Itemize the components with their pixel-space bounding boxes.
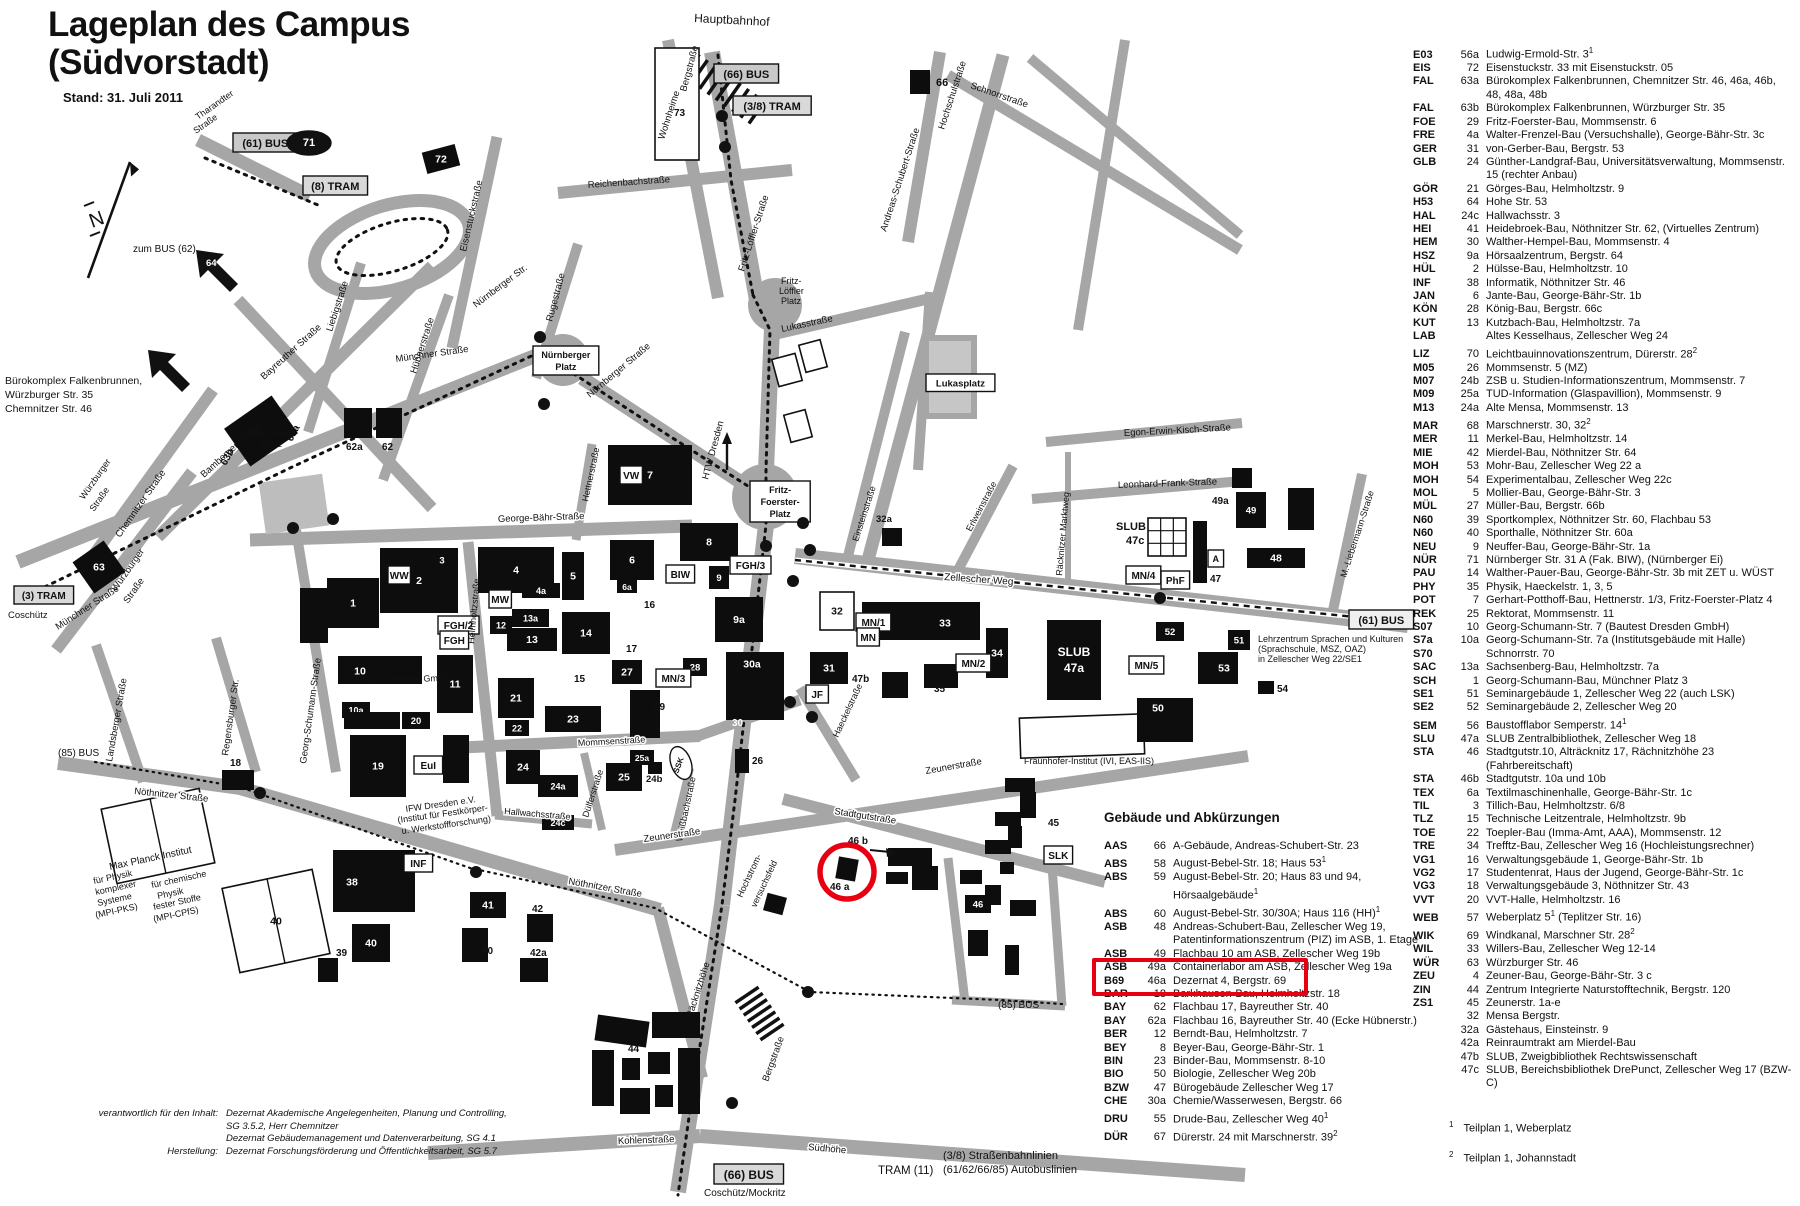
legend-desc: von-Gerber-Bau, Bergstr. 53 [1486, 143, 1793, 156]
legend-number: 55 [1140, 1113, 1173, 1126]
building [886, 872, 908, 884]
building-number: SLUB [1058, 645, 1091, 659]
legend-row: BAY62aFlachbau 16, Bayreuther Str. 40 (E… [1104, 1015, 1424, 1028]
legend-number: 47a [1453, 733, 1486, 746]
building-number: 5 [570, 571, 576, 583]
legend-abbr: SCH [1413, 675, 1453, 688]
legend-row: 32aGästehaus, Einsteinstr. 9 [1413, 1024, 1793, 1037]
legend-row: NÜR71Nürnberger Str. 31 A (Fak. BIW), (N… [1413, 554, 1793, 567]
htw-arrow-head [722, 432, 732, 444]
legend-number: 40 [1453, 527, 1486, 540]
legend-number: 24a [1453, 402, 1486, 415]
legend-number: 31 [1453, 143, 1486, 156]
legend-row: SLU47aSLUB Zentralbibliothek, Zellescher… [1413, 733, 1793, 746]
street-or-number-label: 47 [1210, 574, 1222, 585]
sign-label: VW [623, 471, 640, 482]
street-or-number-label: 18 [230, 758, 242, 769]
street-or-number-label: 66 [936, 77, 948, 89]
legend-row: WÜR63Würzburger Str. 46 [1413, 957, 1793, 970]
building [443, 735, 469, 783]
building-number: 7 [647, 470, 653, 482]
legend-abbr: MIE [1413, 447, 1453, 460]
legend-desc: Mollier-Bau, George-Bähr-Str. 3 [1486, 487, 1793, 500]
legend-row: MER11Merkel-Bau, Helmholtzstr. 14 [1413, 433, 1793, 446]
building-number: 46 [973, 900, 984, 911]
building-number: 51 [1234, 636, 1245, 647]
legend-row: GÖR21Görges-Bau, Helmholtzstr. 9 [1413, 183, 1793, 196]
legend-desc: Willers-Bau, Zellescher Weg 12-14 [1486, 943, 1793, 956]
legend-row: HSZ9aHörsaalzentrum, Bergstr. 64 [1413, 250, 1793, 263]
legend-number: 58 [1140, 858, 1173, 871]
stop-dot [534, 331, 546, 343]
legend-row: DÜR67Dürerstr. 24 mit Marschnerstr. 392 [1104, 1127, 1424, 1145]
legend-number: 42a [1453, 1037, 1486, 1050]
sign-label: (61) BUS [242, 138, 288, 150]
sign-label: EuI [421, 761, 437, 772]
legend-right: E0356aLudwig-Ermold-Str. 31EIS72Eisenstu… [1413, 44, 1793, 1091]
legend-row: VG116Verwaltungsgebäude 1, George-Bähr-S… [1413, 854, 1793, 867]
legend-abbr: HSZ [1413, 250, 1453, 263]
legend-number: 20 [1453, 894, 1486, 907]
building [968, 930, 988, 956]
building-number: 3 [439, 556, 444, 567]
street-or-number-label: 62a [346, 442, 363, 453]
legend-abbr: TOE [1413, 827, 1453, 840]
legend-desc: Beyer-Bau, George-Bähr-Str. 1 [1173, 1042, 1423, 1055]
street-or-number-label: Nürnberger Str. [471, 263, 529, 311]
stop-dot [287, 522, 299, 534]
legend-abbr: S7a [1413, 634, 1453, 647]
campus-map-page: 4032721231010a1119202122232424a2525a30a2… [0, 0, 1800, 1206]
legend-desc: Reinraumtrakt am Mierdel-Bau [1486, 1037, 1793, 1050]
legend-number: 69 [1453, 930, 1486, 943]
building-number: 30a [743, 659, 761, 671]
legend-desc: Sachsenberg-Bau, Helmholtzstr. 7a [1486, 661, 1793, 674]
legend-row: TOE22Toepler-Bau (Imma-Amt, AAA), Mommse… [1413, 827, 1793, 840]
legend-abbr: PAU [1413, 567, 1453, 580]
building [648, 1052, 670, 1074]
legend-number: 15 [1453, 813, 1486, 826]
legend-desc: Walther-Pauer-Bau, George-Bähr-Str. 3b m… [1486, 567, 1793, 580]
street-or-number-label: Chemnitzer Str. 46 [5, 403, 92, 415]
legend-desc: Rektorat, Mommsenstr. 11 [1486, 608, 1793, 621]
legend-desc: Zentrum Integrierte Naturstofftechnik, B… [1486, 984, 1793, 997]
legend-number: 33 [1453, 943, 1486, 956]
legend-desc: Bürokomplex Falkenbrunnen, Würzburger St… [1486, 102, 1793, 115]
building-number: 31 [823, 663, 835, 675]
stop-dot [797, 517, 809, 529]
building-number: 40 [270, 916, 282, 928]
stop-dot [726, 1097, 738, 1109]
street-or-number-label: 45 [1048, 818, 1060, 829]
legend-number: 46 [1453, 746, 1486, 759]
legend-desc: SLUB Zentralbibliothek, Zellescher Weg 1… [1486, 733, 1793, 746]
building [763, 893, 787, 916]
credit-row: SG 3.5.2, Herr Chemnitzer [88, 1121, 507, 1134]
building-number: 40 [365, 938, 377, 950]
legend-number: 72 [1453, 62, 1486, 75]
legend-number: 60 [1140, 908, 1173, 921]
building-number: 24a [550, 782, 566, 792]
highlight-rectangle [1092, 958, 1308, 996]
legend-number: 30a [1140, 1095, 1173, 1108]
legend-desc: Heidebroek-Bau, Nöthnitzer Str. 62, (Vir… [1486, 223, 1793, 236]
legend-number: 62 [1140, 1001, 1173, 1014]
building [300, 588, 328, 643]
legend-number: 66 [1140, 840, 1173, 853]
street-or-number-label: Platz [262, 439, 283, 449]
legend-number: 21 [1453, 183, 1486, 196]
legend-abbr: N60 [1413, 527, 1453, 540]
sign-label: INF [410, 859, 426, 870]
oval-label: 71 [303, 137, 315, 149]
legend-desc: Günther-Landgraf-Bau, Universitätsverwal… [1486, 156, 1793, 183]
legend-number: 38 [1453, 277, 1486, 290]
street-or-number-label: 30 [732, 718, 744, 729]
legend-row: ABS58August-Bebel-Str. 18; Haus 531 [1104, 853, 1424, 871]
legend-abbr: LIZ [1413, 348, 1453, 361]
legend-desc: Hülsse-Bau, Helmholtzstr. 10 [1486, 263, 1793, 276]
outline-building [1019, 714, 1144, 758]
street-or-number-label: 17 [626, 644, 638, 655]
legend-desc: Walter-Frenzel-Bau (Versuchshalle), Geor… [1486, 129, 1793, 142]
legend-row: EIS72Eisenstuckstr. 33 mit Eisenstuckstr… [1413, 62, 1793, 75]
legend-abbr: HAL [1413, 210, 1453, 223]
building [1232, 468, 1252, 488]
legend-desc: Sportkomplex, Nöthnitzer Str. 60, Flachb… [1486, 514, 1793, 527]
legend-row: GLB24Günther-Landgraf-Bau, Universitätsv… [1413, 156, 1793, 183]
legend-abbr: TLZ [1413, 813, 1453, 826]
building-number: 23 [567, 714, 579, 726]
legend-abbr: EIS [1413, 62, 1453, 75]
legend-number: 64 [1453, 196, 1486, 209]
credits: verantwortlich für den Inhalt:Dezernat A… [88, 1108, 507, 1158]
direction-arrow [196, 250, 238, 292]
legend-number: 29 [1453, 116, 1486, 129]
legend-row: PHY35Physik, Haeckelstr. 1, 3, 5 [1413, 581, 1793, 594]
legend-number: 1 [1453, 675, 1486, 688]
legend-number: 63a [1453, 75, 1486, 88]
legend-abbr: FAL [1413, 102, 1453, 115]
building-number: 27 [621, 667, 633, 679]
legend-abbr: KUT [1413, 317, 1453, 330]
legend-row: HÜL2Hülsse-Bau, Helmholtzstr. 10 [1413, 263, 1793, 276]
legend-number: 13a [1453, 661, 1486, 674]
building-number: 38 [346, 877, 358, 889]
legend-row: WEB57Weberplatz 51 (Teplitzer Str. 16) [1413, 907, 1793, 925]
legend-row: E0356aLudwig-Ermold-Str. 31 [1413, 44, 1793, 62]
legend-abbr: AAS [1104, 840, 1140, 853]
outline-building [799, 340, 827, 373]
building [318, 958, 338, 982]
legend-number: 6a [1453, 787, 1486, 800]
legend-number: 24b [1453, 375, 1486, 388]
legend-abbr: ABS [1104, 871, 1140, 884]
legend-row: ZEU4Zeuner-Bau, George-Bähr-Str. 3 c [1413, 970, 1793, 983]
legend-desc: Sporthalle, Nöthnitzer Str. 60a [1486, 527, 1793, 540]
legend-desc: Zeunerstr. 1a-e [1486, 997, 1793, 1010]
legend-desc: Stadtgutstr. 10a und 10b [1486, 773, 1793, 786]
stop-dot [784, 696, 796, 708]
legend-row: BIO50Biologie, Zellescher Weg 20b [1104, 1068, 1424, 1081]
legend-number: 68 [1453, 420, 1486, 433]
legend-desc: Nürnberger Str. 31 A (Fak. BIW), (Nürnbe… [1486, 554, 1793, 567]
legend-abbr: JAN [1413, 290, 1453, 303]
legend-row: VG318Verwaltungsgebäude 3, Nöthnitzer St… [1413, 880, 1793, 893]
legend-desc: Georg-Schumann-Str. 7a (Institutsgebäude… [1486, 634, 1793, 647]
legend-desc: Bürogebäude Zellescher Weg 17 [1173, 1082, 1423, 1095]
building [344, 712, 400, 729]
legend-row: BZW47Bürogebäude Zellescher Weg 17 [1104, 1082, 1424, 1095]
legend-row: BEY8Beyer-Bau, George-Bähr-Str. 1 [1104, 1042, 1424, 1055]
building [520, 958, 548, 982]
sign-label: BIW [671, 570, 691, 581]
legend-row: SAC13aSachsenberg-Bau, Helmholtzstr. 7a [1413, 661, 1793, 674]
legend-number: 54 [1453, 474, 1486, 487]
legend-number: 9 [1453, 541, 1486, 554]
legend-number: 7 [1453, 594, 1486, 607]
legend-abbr: HEI [1413, 223, 1453, 236]
road-ring [303, 183, 481, 310]
legend-number: 51 [1453, 688, 1486, 701]
sign-label: (3/8) TRAM [743, 101, 800, 113]
footnote: 2Teilplan 1, Johannstadt [1449, 1142, 1576, 1172]
legend-abbr: TIL [1413, 800, 1453, 813]
legend-abbr: ASB [1104, 921, 1140, 934]
sign-label: (8) TRAM [311, 181, 359, 193]
legend-row: SCH1Georg-Schumann-Bau, Münchner Platz 3 [1413, 675, 1793, 688]
legend-abbr: BAY [1104, 1001, 1140, 1014]
legend-abbr: REK [1413, 608, 1453, 621]
street-or-number-label: (85) BUS [998, 1000, 1039, 1011]
footnotes: 1Teilplan 1, Weberplatz2Teilplan 1, Joha… [1449, 1112, 1576, 1171]
building [1288, 488, 1314, 530]
building-number: 47a [1064, 661, 1084, 675]
legend-number: 53 [1453, 460, 1486, 473]
street-or-number-label: zum BUS (62) [133, 244, 196, 255]
legend-number: 16 [1453, 854, 1486, 867]
building [1047, 620, 1101, 700]
legend-abbr: BIO [1104, 1068, 1140, 1081]
legend-desc: Fritz-Foerster-Bau, Mommsenstr. 6 [1486, 116, 1793, 129]
legend-row: BIN23Binder-Bau, Mommsenstr. 8-10 [1104, 1055, 1424, 1068]
legend-bottom-heading: Gebäude und Abkürzungen [1104, 810, 1280, 825]
building [1010, 900, 1036, 916]
legend-number: 39 [1453, 514, 1486, 527]
building-number: 25a [635, 753, 649, 763]
building-number: 49 [1246, 506, 1257, 517]
building [1005, 778, 1035, 792]
legend-row: MAR68Marschnerstr. 30, 322 [1413, 415, 1793, 433]
legend-row: WIK69Windkanal, Marschner Str. 282 [1413, 925, 1793, 943]
legend-row: NEU9Neuffer-Bau, George-Bähr-Str. 1a [1413, 541, 1793, 554]
legend-number: 18 [1453, 880, 1486, 893]
legend-row: 47bSLUB, Zweigbibliothek Rechtswissensch… [1413, 1051, 1793, 1064]
legend-abbr: SE1 [1413, 688, 1453, 701]
legend-row: DRU55Drude-Bau, Zellescher Weg 401 [1104, 1109, 1424, 1127]
legend-number: 42 [1453, 447, 1486, 460]
legend-number: 5 [1453, 487, 1486, 500]
road [58, 763, 240, 788]
legend-abbr: GER [1413, 143, 1453, 156]
legend-desc: Weberplatz 51 (Teplitzer Str. 16) [1486, 907, 1793, 925]
building-number: 52 [1165, 627, 1176, 638]
legend-desc: Müller-Bau, Bergstr. 66b [1486, 500, 1793, 513]
building-number: 11 [449, 679, 460, 691]
stop-dot [538, 398, 550, 410]
legend-row: S70Schnorrstr. 70 [1413, 648, 1793, 661]
legend-number: 27 [1453, 500, 1486, 513]
legend-row: WIL33Willers-Bau, Zellescher Weg 12-14 [1413, 943, 1793, 956]
legend-row: INF38Informatik, Nöthnitzer Str. 46 [1413, 277, 1793, 290]
legend-abbr: M07 [1413, 375, 1453, 388]
legend-row: JAN6Jante-Bau, George-Bähr-Str. 1b [1413, 290, 1793, 303]
street-or-number-label: 49a [1212, 496, 1229, 507]
legend-abbr: BEY [1104, 1042, 1140, 1055]
road [452, 137, 497, 348]
sign-label: Lukasplatz [936, 379, 985, 390]
legend-row: MOH54Experimentalbau, Zellescher Weg 22c [1413, 474, 1793, 487]
stop-dot [1154, 592, 1166, 604]
direction-arrow [148, 350, 190, 392]
sign-label: JF [811, 690, 823, 701]
legend-abbr: HÜL [1413, 263, 1453, 276]
road [294, 518, 336, 772]
sign-label: MN/2 [961, 659, 985, 670]
legend-row: REK25Rektorat, Mommsenstr. 11 [1413, 608, 1793, 621]
legend-row: MOH53Mohr-Bau, Zellescher Weg 22 a [1413, 460, 1793, 473]
building-number: 4a [536, 586, 547, 596]
street-or-number-label: Coschütz/Mockritz [704, 1188, 786, 1199]
legend-row: N6039Sportkomplex, Nöthnitzer Str. 60, F… [1413, 514, 1793, 527]
sign-label: MN/3 [661, 674, 685, 685]
title-line2: (Südvorstadt) [48, 44, 410, 82]
building [882, 672, 908, 698]
page-title: Lageplan des Campus (Südvorstadt) [48, 6, 410, 82]
legend-number: 2 [1453, 263, 1486, 276]
legend-row: FOE29Fritz-Foerster-Bau, Mommsenstr. 6 [1413, 116, 1793, 129]
legend-abbr: PHY [1413, 581, 1453, 594]
legend-desc: Textil­maschinenhalle, George-Bähr-Str. … [1486, 787, 1793, 800]
legend-row: POT7Gerhart-Potthoff-Bau, Hettnerstr. 1/… [1413, 594, 1793, 607]
legend-row: GER31von-Gerber-Bau, Bergstr. 53 [1413, 143, 1793, 156]
building-number: 21 [510, 693, 522, 705]
legend-abbr: SLU [1413, 733, 1453, 746]
building-number: 1 [350, 598, 356, 610]
road [957, 466, 1013, 572]
building [592, 1050, 614, 1106]
legend-desc: Hörsaalzentrum, Bergstr. 64 [1486, 250, 1793, 263]
legend-desc: Zeuner-Bau, George-Bähr-Str. 3 c [1486, 970, 1793, 983]
legend-desc: TUD-Information (Glaspavillion), Mommsen… [1486, 388, 1793, 401]
street-or-number-label: Bautest Dresden GmbH [354, 673, 450, 686]
building [835, 856, 859, 881]
street-or-number-label: Platz [781, 296, 802, 306]
legend-row: FRE4aWalter-Frenzel-Bau (Versuchshalle),… [1413, 129, 1793, 142]
street-or-number-label: 29 [654, 702, 666, 713]
footnote: 1Teilplan 1, Weberplatz [1449, 1112, 1576, 1142]
legend-row: MÜL27Müller-Bau, Bergstr. 66b [1413, 500, 1793, 513]
stop-dot [327, 513, 339, 525]
legend-row: ZS145Zeunerstr. 1a-e [1413, 997, 1793, 1010]
legend-row: VG217Studentenrat, Haus der Jugend, Geor… [1413, 867, 1793, 880]
building-number: 24 [517, 762, 529, 774]
building [620, 1088, 650, 1114]
building-number: 63 [93, 562, 105, 574]
sign-label: MN/4 [1131, 571, 1155, 582]
building [882, 528, 902, 546]
building [995, 812, 1021, 826]
legend-row: M0724bZSB u. Studien-Informationszentrum… [1413, 375, 1793, 388]
legend-desc: Informatik, Nöthnitzer Str. 46 [1486, 277, 1793, 290]
street-or-number-label: (Sprachschule, MSZ, OAZ) [1258, 644, 1366, 654]
credit-row: Herstellung:Dezernat Forschungsförderung… [88, 1146, 507, 1159]
legend-row: ZIN44Zentrum Integrierte Naturstofftechn… [1413, 984, 1793, 997]
sign-label: MN/5 [1134, 661, 1158, 672]
street-or-number-label: Würzburger Str. 35 [5, 389, 93, 401]
legend-abbr: BIN [1104, 1055, 1140, 1068]
building [1258, 681, 1274, 694]
legend-row: KUT13Kutzbach-Bau, Helmholtzstr. 7a [1413, 317, 1793, 330]
building [1193, 521, 1207, 583]
legend-desc: SLUB, Bereichsbibliothek DrePunct, Zelle… [1486, 1064, 1793, 1091]
legend-desc: Stadtgutstr.10, Alträcknitz 17, Rächnitz… [1486, 746, 1793, 773]
building [912, 866, 938, 890]
stop-dot [470, 866, 482, 878]
sign-label: FGH/3 [736, 561, 766, 572]
legend-row: TLZ15Technische Leitzentrale, Helmholtzs… [1413, 813, 1793, 826]
legend-desc: ZSB u. Studien-Informationszentrum, Momm… [1486, 375, 1793, 388]
building-number: 4 [513, 565, 519, 577]
legend-number: 46b [1453, 773, 1486, 786]
legend-number: 14 [1453, 567, 1486, 580]
legend-abbr: MAR [1413, 420, 1453, 433]
street-or-number-label: 24b [646, 774, 663, 785]
legend-abbr: S70 [1413, 648, 1453, 661]
legend-abbr: GLB [1413, 156, 1453, 169]
legend-number: 57 [1453, 912, 1486, 925]
stop-dot [716, 110, 728, 122]
legend-desc: Andreas-Schubert-Bau, Zellescher Weg 19,… [1173, 921, 1423, 948]
building-number: 13 [526, 634, 538, 646]
building-number: 19 [372, 761, 384, 773]
sign-label: (61) BUS [1358, 615, 1404, 627]
legend-desc: Altes Kesselhaus, Zellescher Weg 24 [1486, 330, 1793, 343]
legend-number: 22 [1453, 827, 1486, 840]
legend-abbr: M09 [1413, 388, 1453, 401]
title-line1: Lageplan des Campus [48, 6, 410, 44]
legend-abbr: DRU [1104, 1113, 1140, 1126]
legend-desc: Toepler-Bau (Imma-Amt, AAA), Mommsenstr.… [1486, 827, 1793, 840]
legend-desc: Chemie/Wasserwesen, Bergstr. 66 [1173, 1095, 1423, 1108]
building [910, 70, 930, 94]
legend-desc: Flachbau 16, Bayreuther Str. 40 (Ecke Hü… [1173, 1015, 1423, 1028]
building-number: 6a [622, 582, 632, 592]
legend-abbr: NÜR [1413, 554, 1453, 567]
legend-row: SE151Seminargebäude 1, Zellescher Weg 22… [1413, 688, 1793, 701]
legend-number: 45 [1453, 997, 1486, 1010]
street-or-number-label: Haeckelstraße [831, 682, 865, 739]
building [985, 840, 1011, 854]
legend-abbr: MÜL [1413, 500, 1453, 513]
legend-row: HEI41Heidebroek-Bau, Nöthnitzer Str. 62,… [1413, 223, 1793, 236]
legend-row: PAU14Walther-Pauer-Bau, George-Bähr-Str.… [1413, 567, 1793, 580]
legend-row: ABS60August-Bebel-Str. 30/30A; Haus 116 … [1104, 903, 1424, 921]
building-number: 14 [580, 628, 592, 640]
street-or-number-label: 47b [852, 674, 869, 685]
credit-row: verantwortlich für den Inhalt:Dezernat A… [88, 1108, 507, 1121]
building-number: 2 [416, 575, 422, 587]
